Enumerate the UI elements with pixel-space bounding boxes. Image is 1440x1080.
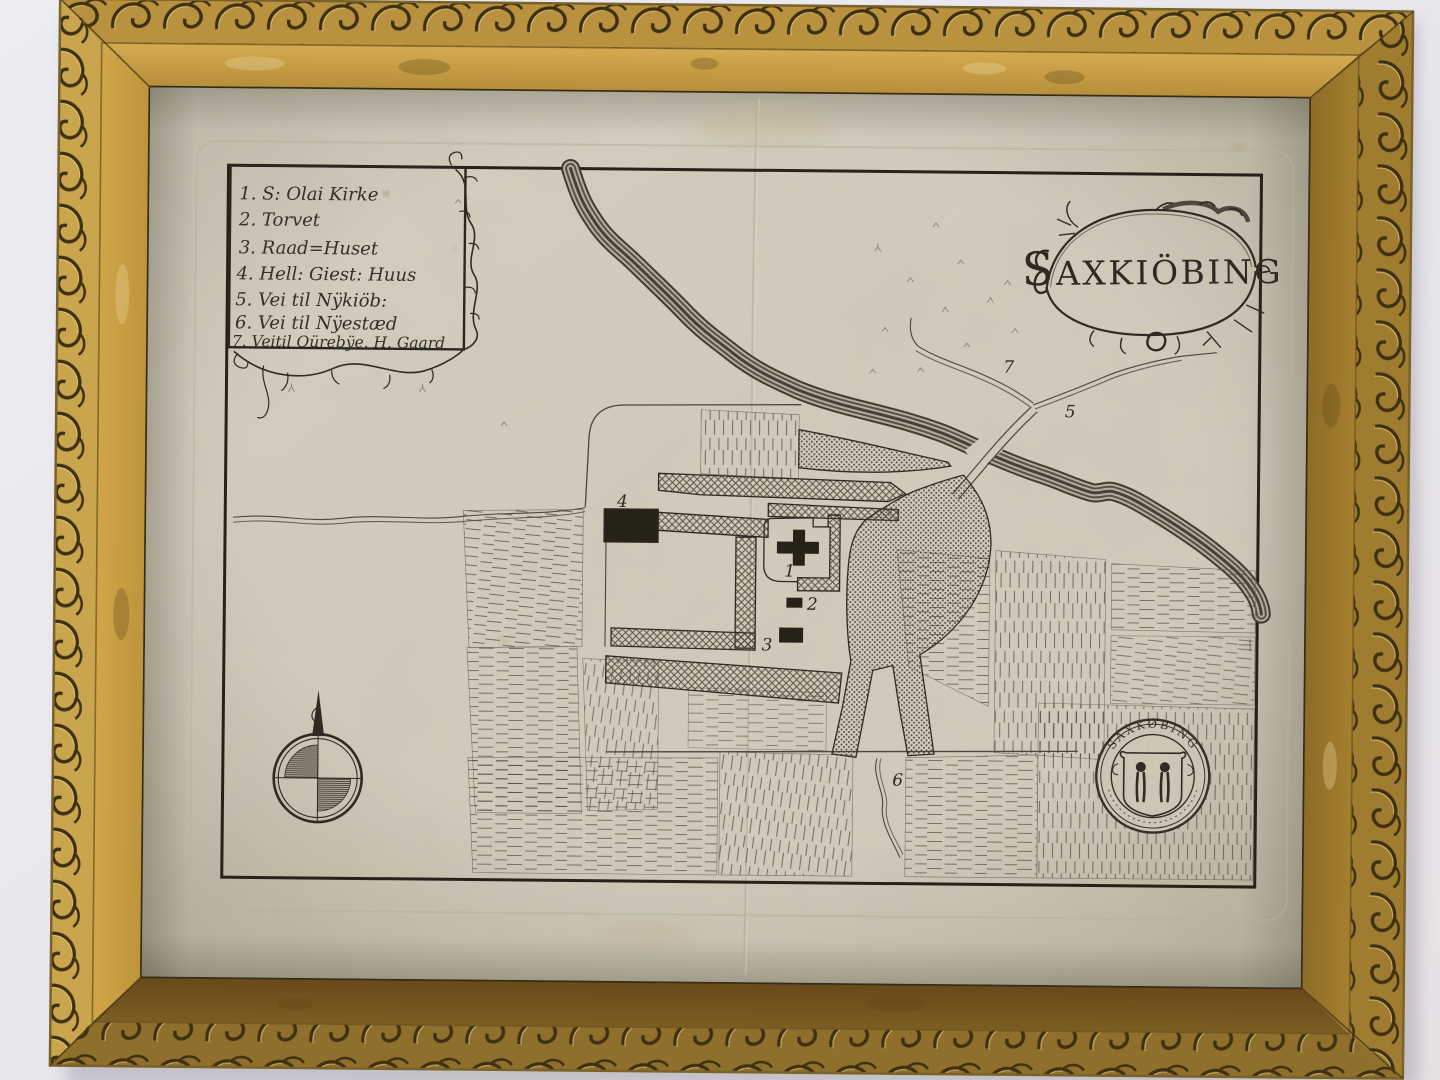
photo-of-framed-map: 1. S: Olai Kirke 2. Torvet 3. Raad=Huset… [0, 0, 1440, 1080]
legend-item: 3. Raad=Huset [239, 237, 379, 259]
legend-item: 7. Veitil Oürebÿe. H. Gaard [232, 332, 445, 352]
marker-1: 1 [784, 562, 795, 582]
marker-7: 7 [1003, 358, 1014, 378]
legend-item: 2. Torvet [238, 209, 321, 231]
legend-item: 6. Vei til Nÿestæd [235, 312, 398, 335]
framed-artwork: 1. S: Olai Kirke 2. Torvet 3. Raad=Huset… [50, 0, 1413, 1079]
field-above-town [701, 410, 800, 479]
marker-2: 2 [806, 595, 818, 615]
marker-6: 6 [892, 771, 903, 791]
marker-5: 5 [1065, 402, 1076, 422]
block-market-east [735, 537, 756, 648]
building-town-hall [779, 627, 803, 642]
building-torvet [786, 598, 802, 608]
map-sheet: 1. S: Olai Kirke 2. Torvet 3. Raad=Huset… [142, 87, 1309, 987]
legend-item: 1. S: Olai Kirke [239, 183, 378, 205]
legend-item: 4. Hell: Giest: Huus [235, 263, 416, 286]
marker-4: 4 [616, 492, 628, 512]
legend-item: 5. Vei til Nÿkiöb: [235, 289, 387, 311]
marker-3: 3 [761, 635, 772, 655]
building-guest-house [604, 509, 658, 543]
